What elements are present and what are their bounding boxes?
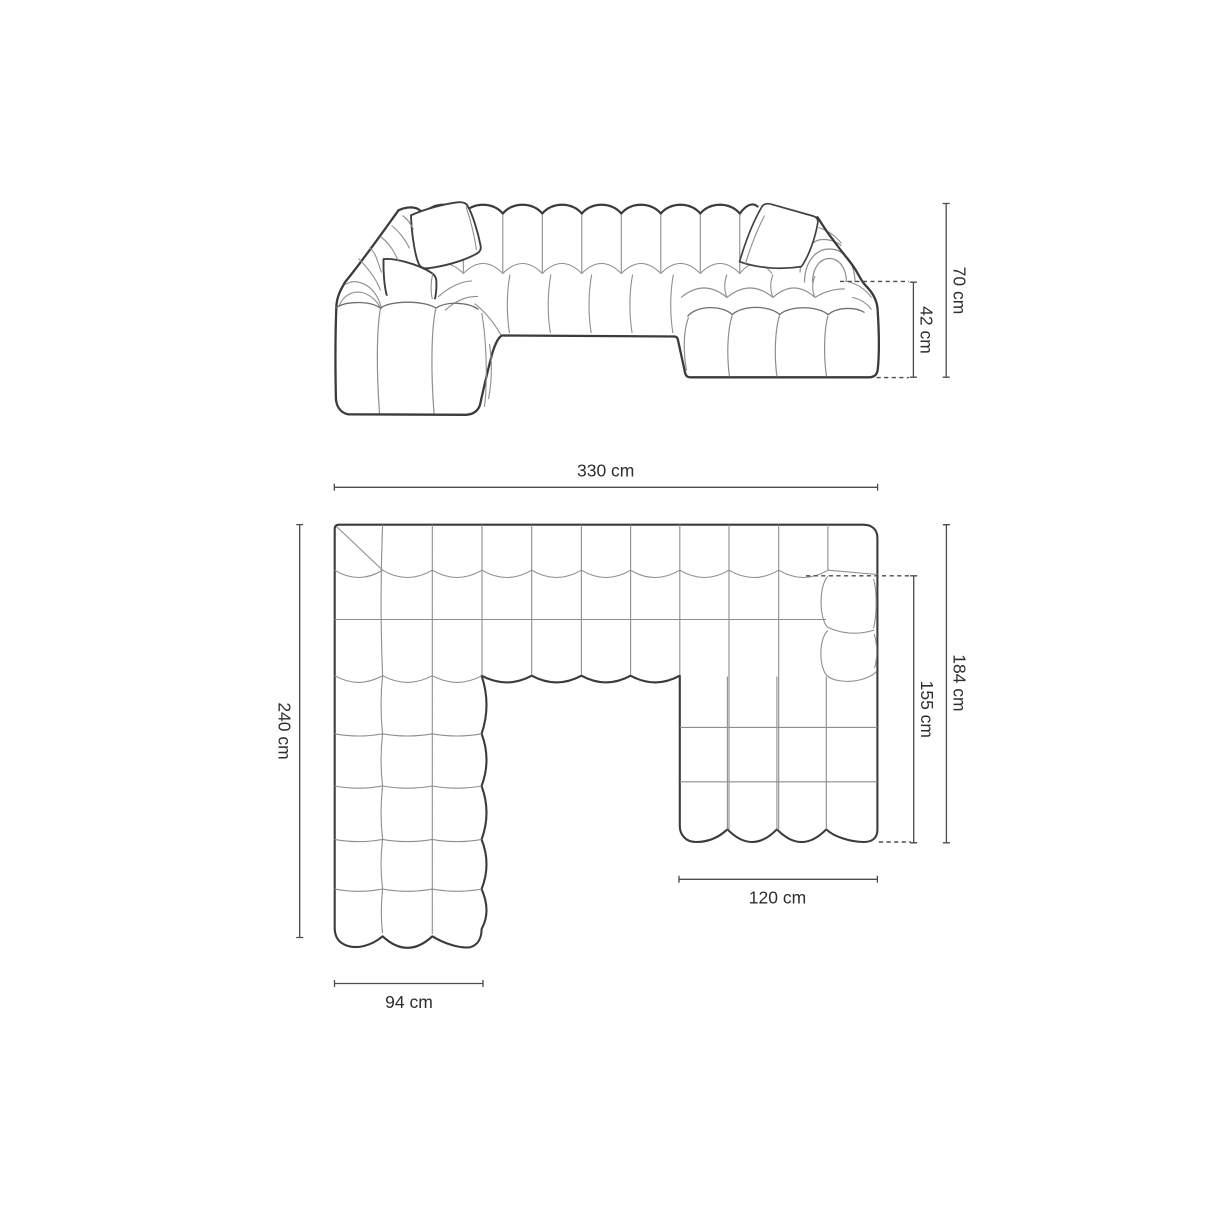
svg-text:42 cm: 42 cm: [916, 306, 936, 354]
svg-text:70 cm: 70 cm: [950, 267, 970, 315]
svg-text:184 cm: 184 cm: [950, 654, 970, 711]
svg-text:120 cm: 120 cm: [749, 888, 806, 908]
svg-text:240 cm: 240 cm: [275, 702, 295, 759]
svg-text:330 cm: 330 cm: [577, 461, 634, 481]
svg-text:155 cm: 155 cm: [917, 681, 937, 738]
svg-text:94 cm: 94 cm: [385, 992, 433, 1012]
